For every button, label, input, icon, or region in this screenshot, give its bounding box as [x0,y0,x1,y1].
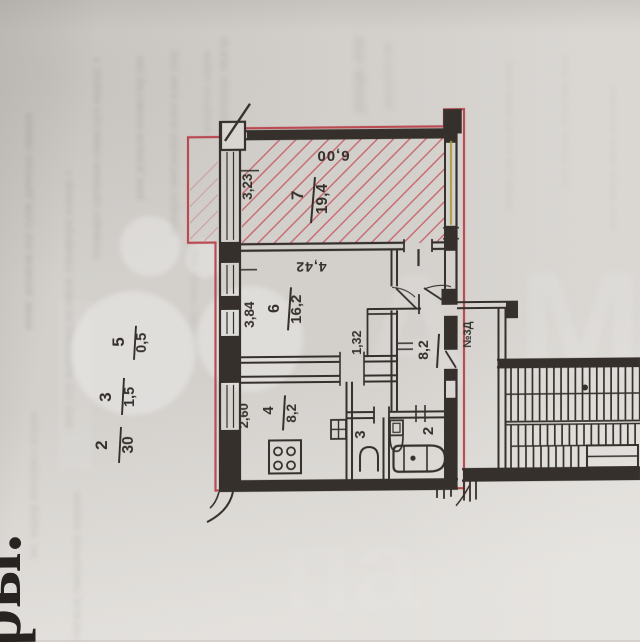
svg-text:3,23: 3,23 [240,173,255,200]
svg-text:№3Д: №3Д [462,321,474,347]
svg-text:1,32: 1,32 [350,330,364,355]
svg-text:2: 2 [420,427,437,436]
svg-text:4,42: 4,42 [295,259,326,275]
svg-text:4: 4 [260,406,277,415]
svg-text:1,5: 1,5 [122,387,138,407]
svg-text:8,2: 8,2 [415,340,431,360]
svg-text:6: 6 [266,304,283,313]
svg-text:19,4: 19,4 [314,183,331,214]
svg-text:16,2: 16,2 [288,295,305,324]
svg-text:3: 3 [352,430,369,439]
svg-text:2,60: 2,60 [236,403,251,428]
svg-text:6,00: 6,00 [316,147,349,164]
svg-text:7: 7 [288,190,307,200]
svg-text:0,5: 0,5 [134,333,150,353]
svg-text:30: 30 [120,436,137,453]
svg-text:2: 2 [92,440,111,450]
svg-text:5: 5 [109,337,128,347]
svg-text:иры.: иры. [0,534,36,642]
svg-text:8,2: 8,2 [284,404,299,423]
svg-text:3,84: 3,84 [242,301,257,328]
svg-text:3: 3 [96,392,115,402]
